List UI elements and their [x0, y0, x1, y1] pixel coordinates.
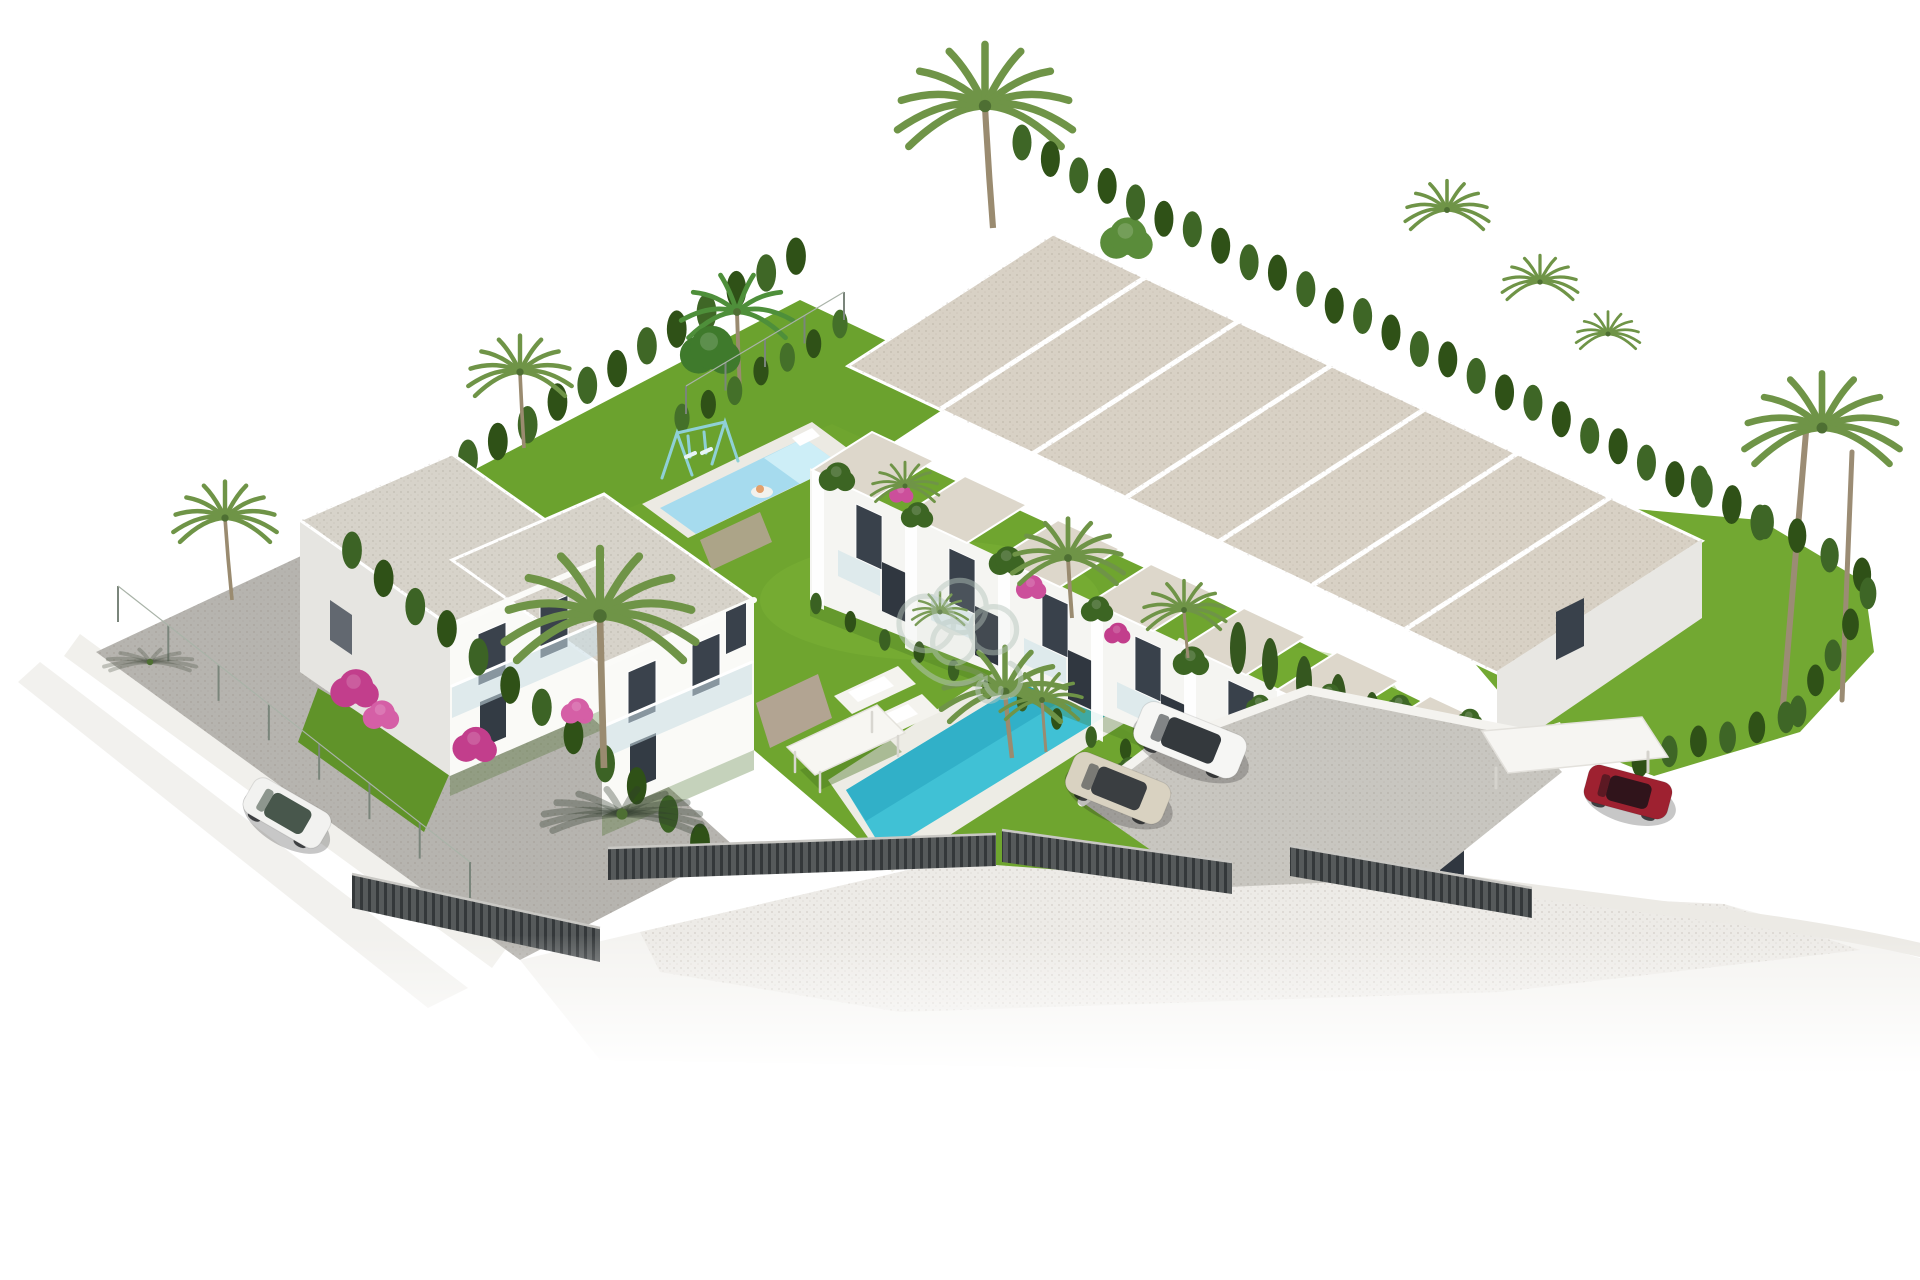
right-palm — [1744, 373, 1899, 463]
palm-row-back-2 — [1502, 255, 1578, 299]
palm-top-big — [897, 44, 1072, 228]
person-on-float — [756, 485, 764, 493]
lh-door-b — [726, 603, 746, 654]
architectural-render-stage — [0, 0, 1920, 1280]
scene-layers — [0, 44, 1920, 1135]
bottom-fade — [0, 935, 1920, 1135]
tree-top-right — [1100, 217, 1153, 259]
palm-row-back-1 — [1405, 181, 1489, 230]
page: { "meta": { "canvas": {"w": 1920, "h": 1… — [0, 0, 1920, 1280]
cypress-1 — [1230, 622, 1246, 674]
palm-row-back-3 — [1576, 312, 1640, 349]
cypress-2 — [1262, 638, 1278, 690]
red-car — [1578, 762, 1682, 835]
banana-bush — [680, 326, 741, 374]
aerial-render-svg — [0, 0, 1920, 1280]
